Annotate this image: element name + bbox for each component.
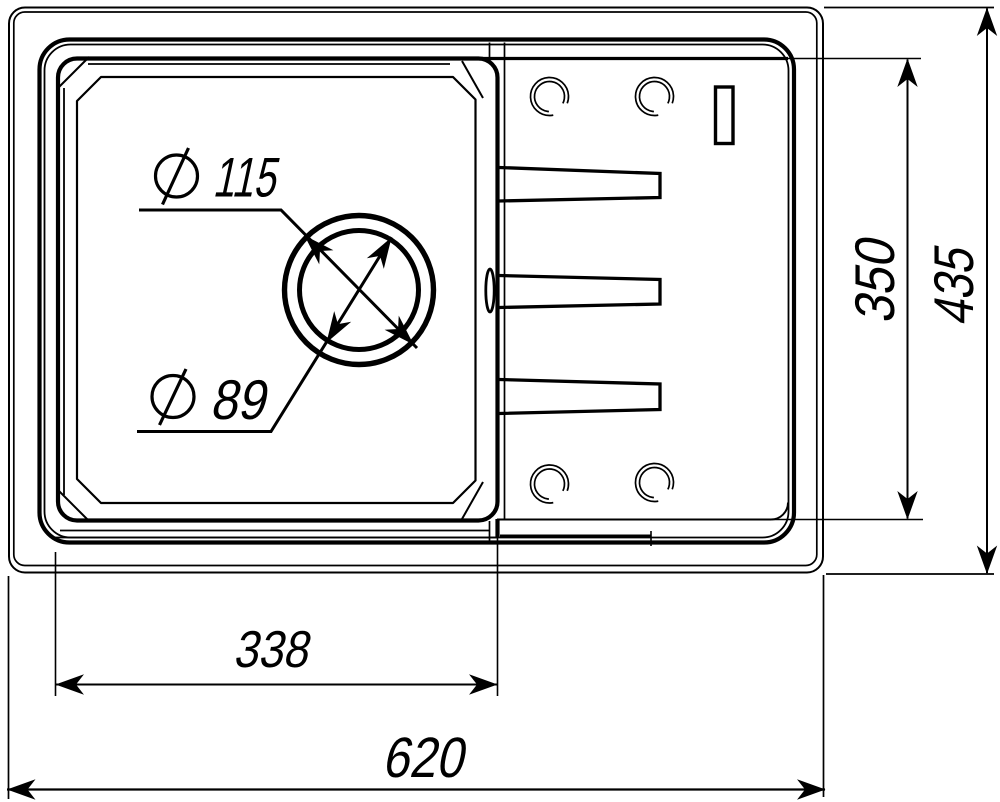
svg-text:338: 338 xyxy=(230,621,317,678)
svg-text:435: 435 xyxy=(922,239,985,329)
svg-text:115: 115 xyxy=(210,147,286,209)
svg-text:620: 620 xyxy=(379,726,473,790)
svg-text:350: 350 xyxy=(844,230,907,326)
